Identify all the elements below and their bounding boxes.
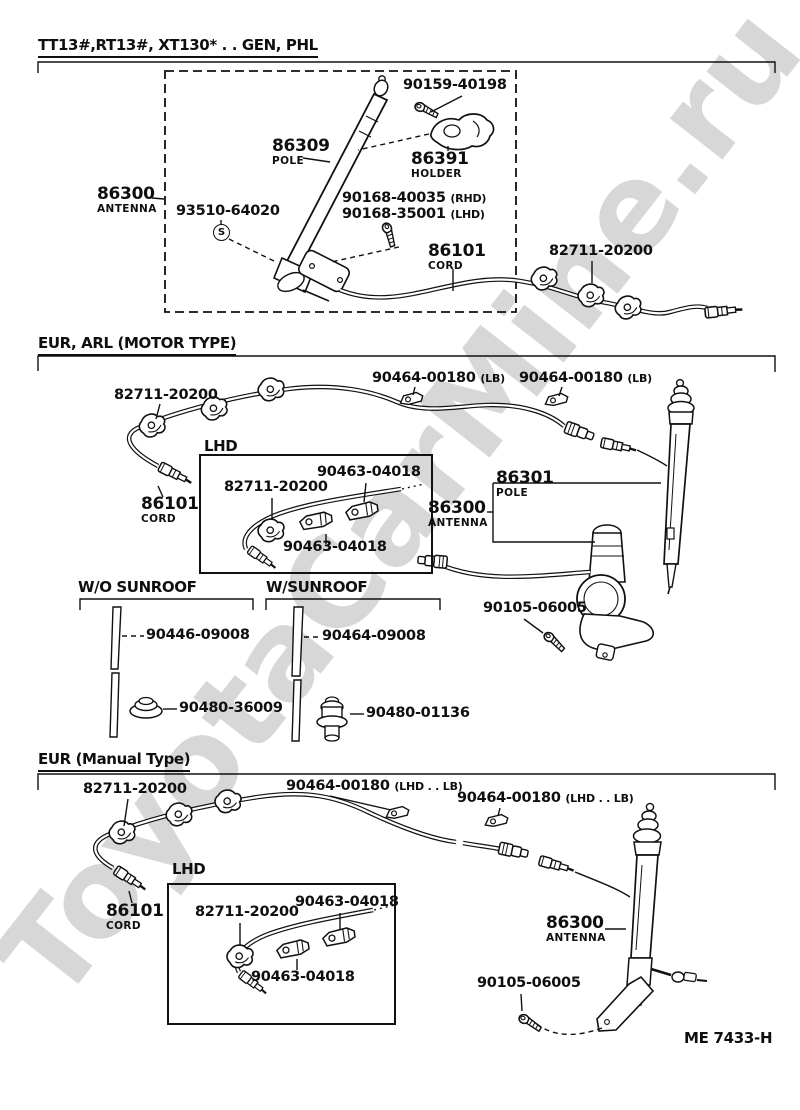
wo-sunroof-tube-upper — [111, 607, 121, 669]
motor-antenna-number: 86300 — [428, 498, 486, 518]
motor-mast — [664, 424, 690, 564]
manual-mast — [631, 855, 658, 958]
manual-clip-3 — [213, 788, 243, 814]
manual-clamp-left-number: 90464-00180 — [286, 778, 390, 794]
label-wo-sunroof-grommet: 90480-36009 — [179, 701, 283, 717]
manual-antenna-caption: ANTENNA — [546, 933, 606, 945]
manual-clamp-right-suffix: (LHD . . LB) — [565, 792, 633, 805]
label-gen-cord: 86101 CORD — [428, 242, 486, 272]
label-manual-lhd-clip: 82711-20200 — [195, 905, 299, 921]
gen-nut-rhd-number: 90168-40035 — [342, 190, 446, 206]
gen-clip-3 — [612, 292, 644, 321]
gen-pole-caption: POLE — [272, 156, 330, 168]
gen-cord-number: 86101 — [428, 241, 486, 261]
label-motor-cord: 86101 CORD — [141, 495, 199, 525]
motor-clamp-right — [544, 393, 568, 406]
label-motor-screw: 90105-06005 — [483, 601, 587, 617]
label-gen-holder: 86391 HOLDER — [411, 150, 469, 180]
manual-clip-2 — [164, 800, 195, 828]
label-w-sunroof-tube: 90464-09008 — [322, 629, 426, 645]
manual-clip-1 — [107, 818, 138, 846]
label-gen-clip: 82711-20200 — [549, 244, 653, 260]
motor-screw — [541, 631, 567, 652]
label-w-sunroof-grommet: 90480-01136 — [366, 706, 470, 722]
motor-clamp-right-number: 90464-00180 — [519, 370, 623, 386]
label-gen-antenna: 86300 ANTENNA — [97, 185, 157, 215]
label-motor-clamp-left: 90464-00180 (LB) — [372, 371, 505, 387]
label-motor-clamp-right: 90464-00180 (LB) — [519, 371, 652, 387]
manual-lhd-clip — [225, 943, 255, 969]
gen-nut-rhd: 90168-40035 (RHD) — [342, 191, 486, 207]
gen-nut-lhd-number: 90168-35001 — [342, 206, 446, 222]
label-gen-nuts: 90168-40035 (RHD) 90168-35001 (LHD) — [342, 191, 486, 223]
motor-lhd-clamp-1 — [299, 511, 332, 529]
label-motor-clip: 82711-20200 — [114, 388, 218, 404]
gen-antenna-caption: ANTENNA — [97, 204, 157, 216]
manual-antenna-plug — [538, 856, 575, 875]
motor-cord-plug — [158, 462, 194, 487]
gen-holder-caption: HOLDER — [411, 169, 469, 181]
manual-lhd-clamp-2 — [322, 927, 356, 946]
gen-base-screw — [378, 221, 400, 247]
manual-cord-number: 86101 — [106, 901, 164, 921]
label-motor-lhd-clip: 82711-20200 — [224, 480, 328, 496]
label-manual-cord: 86101 CORD — [106, 902, 164, 932]
diagram-line-art — [0, 0, 800, 1110]
motor-lhd-clamp-2 — [345, 501, 379, 520]
gen-section-title: TT13#,RT13#, XT130* . . GEN, PHL — [38, 36, 318, 58]
motor-antenna-plug — [600, 438, 637, 455]
doc-code: ME 7433-H — [684, 1030, 772, 1047]
motor-cord-number: 86101 — [141, 494, 199, 514]
label-manual-lhd-clamp-top: 90463-04018 — [295, 895, 399, 911]
w-sunroof-title: W/SUNROOF — [266, 578, 367, 596]
manual-lhd-title: LHD — [172, 860, 205, 878]
manual-ferrule — [498, 842, 529, 860]
motor-clamp-left — [399, 392, 423, 405]
motor-clamp-right-suffix: (LB) — [627, 372, 652, 385]
label-manual-antenna: 86300 ANTENNA — [546, 914, 606, 944]
gen-pole-number: 86309 — [272, 136, 330, 156]
gen-cord-caption: CORD — [428, 261, 486, 273]
motor-clamp-left-suffix: (LB) — [480, 372, 505, 385]
label-gen-holder-screw: 90159-40198 — [403, 78, 507, 94]
gen-nut-lhd: 90168-35001 (LHD) — [342, 207, 486, 223]
manual-screw — [517, 1013, 543, 1031]
label-manual-clip: 82711-20200 — [83, 782, 187, 798]
motor-cord-caption: CORD — [141, 514, 199, 526]
label-gen-pole: 86309 POLE — [272, 137, 330, 167]
gen-antenna-number: 86300 — [97, 184, 155, 204]
manual-lhd-clamp-1 — [276, 939, 310, 958]
manual-mast-bracket — [597, 977, 653, 1031]
gen-cord-plug — [705, 304, 743, 318]
motor-pole-number: 86301 — [496, 468, 554, 488]
wo-sunroof-tube-lower — [110, 673, 119, 737]
gen-clip-2 — [576, 281, 606, 308]
manual-clamp-right — [485, 814, 509, 827]
gen-holder-number: 86391 — [411, 149, 469, 169]
gen-nut-rhd-suffix: (RHD) — [450, 192, 486, 205]
manual-section-title: EUR (Manual Type) — [38, 750, 190, 772]
manual-clamp-right-number: 90464-00180 — [457, 790, 561, 806]
gen-holder-shape — [431, 114, 494, 150]
motor-clip-1 — [136, 410, 168, 440]
label-manual-screw: 90105-06005 — [477, 976, 581, 992]
motor-ferrule — [564, 421, 595, 442]
manual-cord-plug — [113, 866, 148, 894]
motor-lhd-plug — [247, 546, 278, 572]
wo-sunroof-title: W/O SUNROOF — [78, 578, 196, 596]
label-manual-clamp-left: 90464-00180 (LHD . . LB) — [286, 779, 463, 795]
parts-diagram-page: ToyotaCarMine.ru — [0, 0, 800, 1110]
label-wo-sunroof-tube: 90446-09008 — [146, 628, 250, 644]
manual-clamp-left — [386, 806, 410, 819]
manual-antenna-number: 86300 — [546, 913, 604, 933]
motor-clamp-left-number: 90464-00180 — [372, 370, 476, 386]
label-motor-lhd-clamp-bottom: 90463-04018 — [283, 540, 387, 556]
manual-clamp-left-suffix: (LHD . . LB) — [394, 780, 462, 793]
label-motor-lhd-clamp-top: 90463-04018 — [317, 465, 421, 481]
w-sunroof-tube-upper — [292, 607, 303, 676]
motor-lhd-title: LHD — [204, 437, 237, 455]
motor-antenna-caption: ANTENNA — [428, 518, 488, 530]
motor-clip-3 — [256, 375, 287, 403]
gen-pole-shape — [287, 94, 387, 267]
gen-s-symbol: S — [213, 224, 230, 241]
manual-cord-caption: CORD — [106, 921, 164, 933]
gen-nut-lhd-suffix: (LHD) — [450, 208, 484, 221]
w-sunroof-tube-lower — [292, 680, 301, 741]
motor-section-title: EUR, ARL (MOTOR TYPE) — [38, 334, 236, 356]
label-gen-screw-set: 93510-64020 — [176, 204, 280, 220]
motor-pole-caption: POLE — [496, 488, 554, 500]
label-motor-antenna: 86300 ANTENNA — [428, 499, 488, 529]
label-manual-lhd-clamp-bottom: 90463-04018 — [251, 970, 355, 986]
label-motor-pole: 86301 POLE — [496, 469, 554, 499]
label-manual-clamp-right: 90464-00180 (LHD . . LB) — [457, 791, 634, 807]
